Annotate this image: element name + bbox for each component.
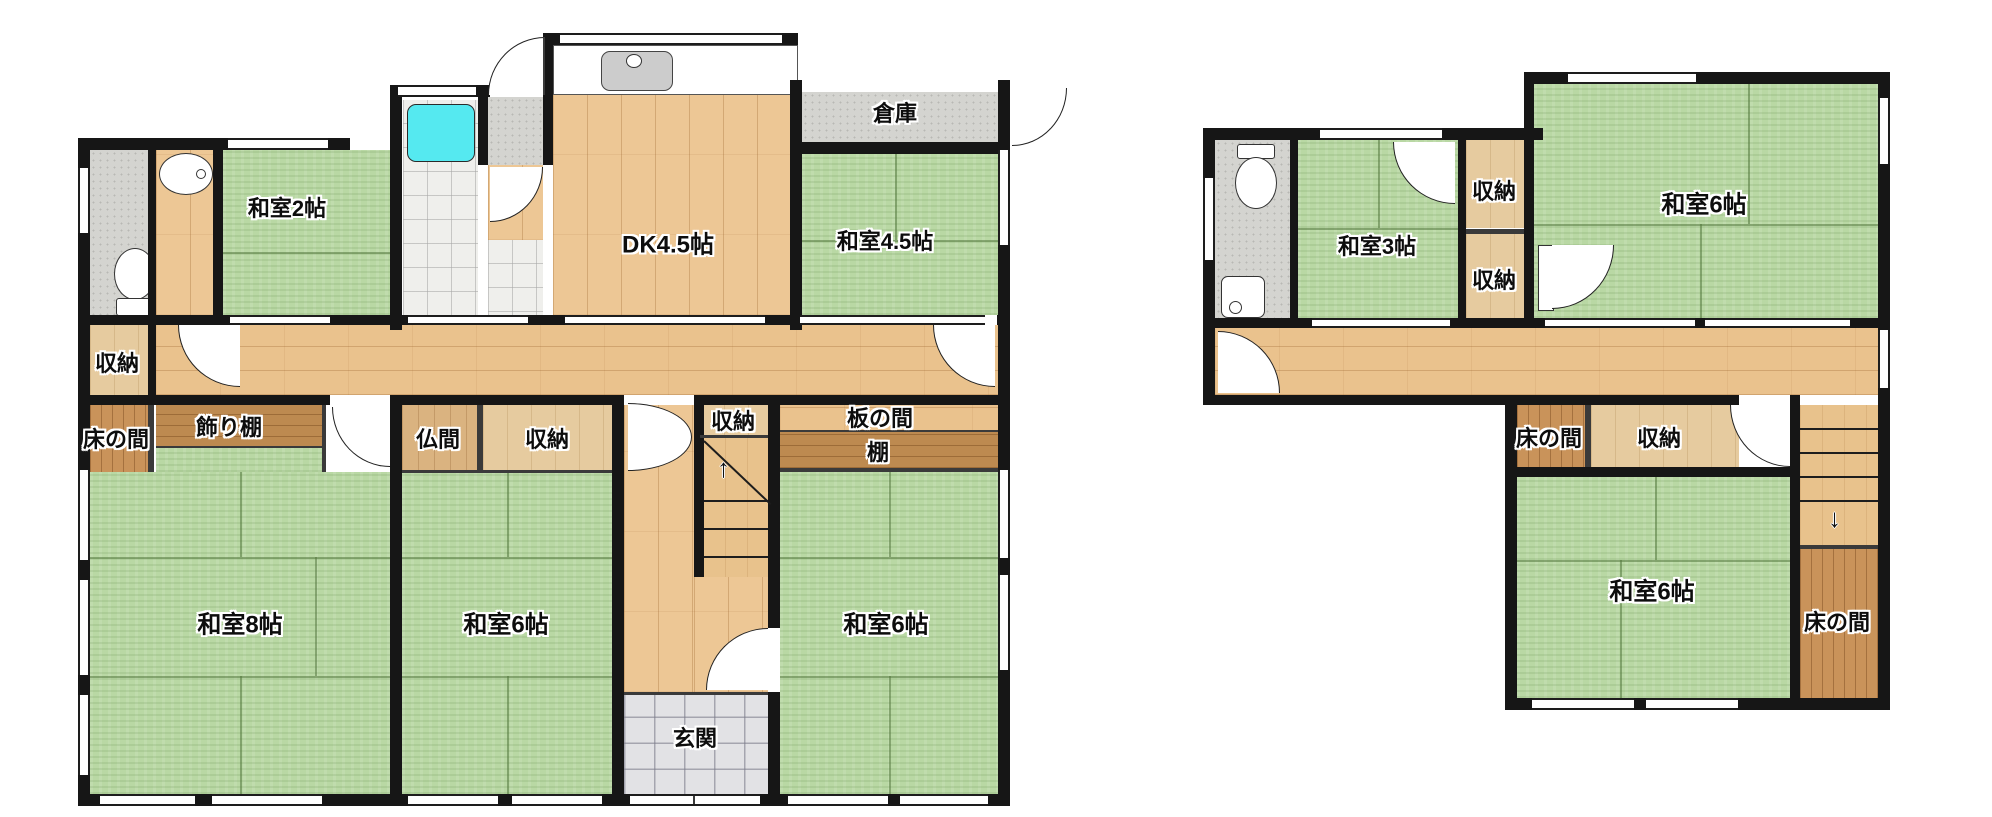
window-marker bbox=[512, 794, 602, 806]
tatami-strip bbox=[156, 448, 324, 472]
sliding-door-marker bbox=[800, 315, 985, 325]
room-label-washitsu-6jo-right: 和室6帖 bbox=[843, 605, 928, 640]
room-label-dk: DK4.5帖 bbox=[622, 225, 714, 260]
window-marker bbox=[78, 580, 90, 675]
room-washroom bbox=[488, 240, 543, 315]
room-label-tokonoma: 床の間 bbox=[83, 422, 149, 454]
window-marker bbox=[1878, 98, 1890, 164]
window-marker bbox=[998, 470, 1010, 558]
room-label-souko: 倉庫 bbox=[873, 96, 917, 128]
room-label-shuno-2f: 収納 bbox=[1637, 421, 1681, 453]
window-marker bbox=[1878, 330, 1890, 388]
room-label-genkan: 玄関 bbox=[673, 721, 717, 753]
room-dk bbox=[553, 95, 790, 315]
window-marker bbox=[212, 794, 322, 806]
room-label-washitsu-6jo-top-2f: 和室6帖 bbox=[1661, 185, 1746, 220]
room-label-tokonoma-left-2f: 床の間 bbox=[1516, 421, 1582, 453]
door-leaf bbox=[543, 37, 545, 95]
floor-plan-canvas: ↑ bbox=[0, 0, 1992, 817]
window-marker bbox=[78, 695, 90, 775]
sliding-door-marker bbox=[1545, 318, 1695, 328]
sliding-door-marker bbox=[230, 315, 330, 325]
room-label-washitsu-8jo: 和室8帖 bbox=[197, 605, 282, 640]
sliding-door-marker bbox=[1705, 318, 1850, 328]
window-marker bbox=[228, 138, 328, 150]
faucet-icon bbox=[626, 54, 642, 68]
sliding-door-marker bbox=[1312, 318, 1450, 328]
room-label-washitsu-3jo: 和室3帖 bbox=[1338, 229, 1416, 261]
window-marker bbox=[100, 794, 195, 806]
window-marker bbox=[78, 470, 90, 560]
room-label-washitsu-2jo: 和室2帖 bbox=[248, 191, 326, 223]
room-bathroom bbox=[403, 100, 478, 315]
window-marker bbox=[900, 794, 988, 806]
room-label-shuno-center: 収納 bbox=[525, 422, 569, 454]
window-marker bbox=[1568, 72, 1696, 84]
room-label-tana: 棚 bbox=[867, 435, 889, 467]
room-label-shuno-left: 収納 bbox=[95, 346, 139, 378]
opening bbox=[330, 395, 390, 405]
sliding-door-marker bbox=[565, 315, 765, 325]
window-marker bbox=[78, 168, 90, 233]
window-marker bbox=[998, 150, 1010, 245]
window-marker bbox=[398, 85, 476, 97]
window-marker bbox=[998, 575, 1010, 670]
window-marker bbox=[1320, 128, 1442, 140]
door-arc bbox=[1012, 88, 1067, 146]
room-label-washitsu-4-5jo: 和室4.5帖 bbox=[837, 224, 934, 256]
window-marker bbox=[408, 794, 498, 806]
room-label-butsuma: 仏間 bbox=[416, 422, 460, 454]
room-porch bbox=[488, 97, 543, 165]
opening bbox=[768, 628, 780, 692]
stairs-down-arrow-icon: ↓ bbox=[1828, 505, 1841, 531]
room-label-shuno-stairs: 収納 bbox=[711, 404, 755, 436]
room-label-itanoma: 板の間 bbox=[847, 401, 913, 433]
washbasin-drain-icon bbox=[196, 169, 206, 179]
bathtub-icon bbox=[407, 104, 475, 162]
window-marker bbox=[560, 33, 782, 45]
room-label-tokonoma-right-2f: 床の間 bbox=[1804, 605, 1870, 637]
hallway-1f bbox=[156, 325, 998, 395]
room-label-washitsu-6jo-center: 和室6帖 bbox=[463, 605, 548, 640]
room-washitsu-2jo bbox=[223, 150, 390, 315]
window-marker bbox=[1203, 178, 1215, 260]
toilet-icon bbox=[1231, 144, 1279, 210]
room-label-shuno-upper-2f: 収納 bbox=[1472, 174, 1516, 206]
sink-icon bbox=[1221, 276, 1265, 318]
window-marker bbox=[1646, 698, 1738, 710]
room-label-kazaridana: 飾り棚 bbox=[196, 410, 262, 442]
stairs-2f: ↓ bbox=[1800, 405, 1878, 545]
stairs-1f: ↑ bbox=[703, 437, 768, 577]
room-label-shuno-lower-2f: 収納 bbox=[1472, 263, 1516, 295]
window-marker bbox=[788, 794, 888, 806]
sliding-door-marker bbox=[408, 315, 528, 325]
door-arc bbox=[488, 37, 545, 95]
window-marker bbox=[1532, 698, 1634, 710]
entrance-door-marker bbox=[630, 794, 760, 806]
hallway-2f bbox=[1215, 328, 1878, 395]
kitchen-counter bbox=[553, 45, 798, 95]
room-label-washitsu-6jo-bottom-2f: 和室6帖 bbox=[1609, 572, 1694, 607]
